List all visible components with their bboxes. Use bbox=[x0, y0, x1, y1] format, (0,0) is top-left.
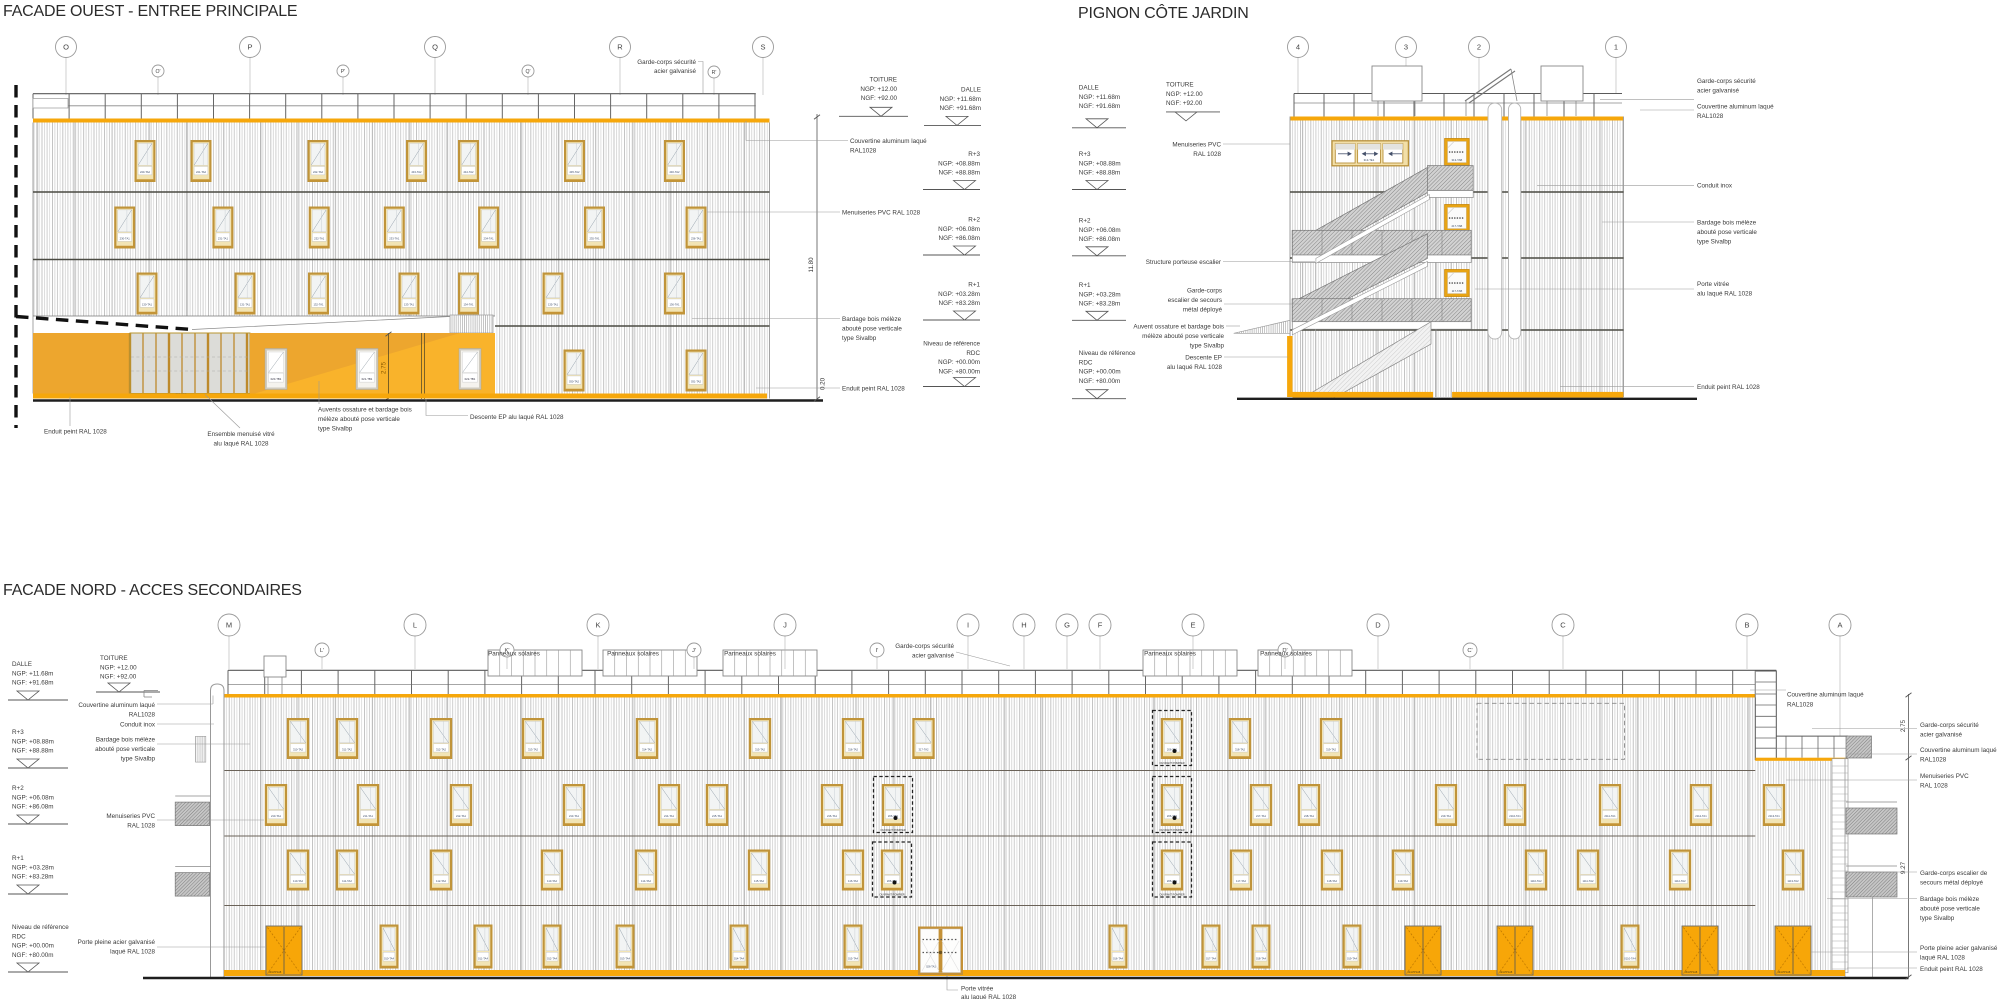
svg-text:FACADE OUEST - ENTREE PRINCIPA: FACADE OUEST - ENTREE PRINCIPALE bbox=[3, 3, 297, 20]
svg-text:Garde-corps: Garde-corps bbox=[1187, 288, 1222, 295]
svg-text:NGP: +03.28m: NGP: +03.28m bbox=[1079, 291, 1121, 298]
svg-text:111-TA2: 111-TA2 bbox=[342, 879, 352, 883]
svg-text:NGP: +00.00m: NGP: +00.00m bbox=[12, 943, 54, 950]
svg-text:NGF: +91.68m: NGF: +91.68m bbox=[940, 105, 981, 112]
svg-text:Ensemble menuisé vitré: Ensemble menuisé vitré bbox=[207, 431, 275, 438]
svg-text:218-TA1: 218-TA1 bbox=[1304, 814, 1315, 818]
svg-text:Couvertine aluminum laqué: Couvertine aluminum laqué bbox=[78, 702, 155, 709]
svg-text:115-TA2: 115-TA2 bbox=[754, 879, 764, 883]
svg-text:DALLE: DALLE bbox=[961, 87, 981, 94]
svg-text:230-TA1: 230-TA1 bbox=[120, 237, 131, 241]
svg-text:abouté pose verticale: abouté pose verticale bbox=[1920, 906, 1980, 913]
svg-text:231-TA1: 231-TA1 bbox=[218, 237, 229, 241]
svg-text:212-TA1: 212-TA1 bbox=[456, 814, 467, 818]
svg-text:313-TAB: 313-TAB bbox=[1451, 158, 1462, 162]
svg-text:2112-TA1: 2112-TA1 bbox=[1695, 814, 1707, 818]
svg-text:mélèze abouté pose verticale: mélèze abouté pose verticale bbox=[318, 416, 400, 423]
svg-text:mélèze abouté pose verticale: mélèze abouté pose verticale bbox=[1142, 333, 1224, 340]
svg-text:1111-TA2: 1111-TA2 bbox=[1582, 879, 1594, 883]
svg-text:133-TA1: 133-TA1 bbox=[404, 303, 415, 307]
svg-text:313-TE1: 313-TE1 bbox=[1364, 158, 1375, 162]
svg-text:abouté pose verticale: abouté pose verticale bbox=[842, 326, 902, 333]
svg-text:Porte vitrée: Porte vitrée bbox=[961, 986, 994, 993]
svg-text:abouté pose verticale: abouté pose verticale bbox=[1697, 229, 1757, 236]
svg-text:NGF: +86.08m: NGF: +86.08m bbox=[12, 804, 53, 811]
svg-text:215-TA1: 215-TA1 bbox=[712, 814, 723, 818]
svg-text:laqué RAL 1028: laqué RAL 1028 bbox=[1920, 955, 1965, 962]
svg-text:315-TA2: 315-TA2 bbox=[755, 747, 766, 751]
svg-text:044-PP1A8: 044-PP1A8 bbox=[1778, 971, 1791, 974]
svg-text:217-TA1: 217-TA1 bbox=[1256, 814, 1267, 818]
svg-text:alu laqué RAL 1028: alu laqué RAL 1028 bbox=[213, 441, 269, 448]
svg-text:type Sivalbp: type Sivalbp bbox=[121, 756, 156, 763]
svg-text:1113-TA2: 1113-TA2 bbox=[1787, 879, 1799, 883]
svg-text:Porte pleine acier galvanisé: Porte pleine acier galvanisé bbox=[78, 939, 156, 946]
svg-text:Couvertine aluminum laqué: Couvertine aluminum laqué bbox=[1697, 104, 1774, 111]
svg-text:R+1: R+1 bbox=[968, 282, 980, 289]
svg-text:113-TA2: 113-TA2 bbox=[547, 879, 557, 883]
svg-text:110-TA2: 110-TA2 bbox=[293, 879, 303, 883]
svg-text:015-TA4: 015-TA4 bbox=[848, 956, 859, 960]
svg-text:Garde-corps sécurité: Garde-corps sécurité bbox=[895, 643, 954, 650]
svg-text:NGF: +88.88m: NGF: +88.88m bbox=[939, 170, 980, 177]
svg-text:P': P' bbox=[341, 69, 345, 75]
svg-text:022-TB1: 022-TB1 bbox=[465, 377, 476, 381]
svg-text:Garde-corps sécurité: Garde-corps sécurité bbox=[1920, 722, 1979, 729]
svg-text:I: I bbox=[967, 621, 969, 630]
svg-text:abouté pose verticale: abouté pose verticale bbox=[95, 746, 155, 753]
svg-text:L: L bbox=[413, 621, 417, 630]
svg-text:Menuiseries PVC: Menuiseries PVC bbox=[1172, 142, 1221, 149]
svg-text:RDC: RDC bbox=[12, 933, 26, 940]
svg-text:acier galvanisé: acier galvanisé bbox=[1697, 88, 1740, 95]
svg-text:R: R bbox=[617, 43, 623, 52]
svg-text:242-TA2: 242-TA2 bbox=[313, 170, 324, 174]
svg-text:Panneaux solaires: Panneaux solaires bbox=[488, 651, 540, 658]
svg-text:011-TA4: 011-TA4 bbox=[478, 956, 488, 960]
svg-text:R+2: R+2 bbox=[968, 217, 980, 224]
svg-text:R+2: R+2 bbox=[12, 785, 24, 792]
svg-text:Couvertine aluminum laqué: Couvertine aluminum laqué bbox=[1920, 747, 1997, 754]
svg-text:R+3: R+3 bbox=[1079, 151, 1091, 158]
svg-text:NGF: +83.28m: NGF: +83.28m bbox=[939, 300, 980, 307]
svg-text:Enduit peint RAL 1028: Enduit peint RAL 1028 bbox=[1920, 966, 1983, 973]
svg-text:Bardage bois mélèze: Bardage bois mélèze bbox=[1697, 220, 1757, 227]
svg-text:NGF: +92.00: NGF: +92.00 bbox=[100, 674, 137, 681]
svg-text:acier galvanisé: acier galvanisé bbox=[1920, 732, 1963, 739]
svg-text:246-TA2: 246-TA2 bbox=[669, 170, 680, 174]
svg-text:NGF: +80.00m: NGF: +80.00m bbox=[1079, 378, 1120, 385]
svg-text:OUVRANT POMPIER: OUVRANT POMPIER bbox=[1159, 828, 1184, 832]
svg-text:Bardage bois mélèze: Bardage bois mélèze bbox=[1920, 896, 1980, 903]
svg-text:118-TA2: 118-TA2 bbox=[1327, 879, 1337, 883]
svg-text:2.75: 2.75 bbox=[381, 361, 388, 374]
svg-text:NGF: +80.00m: NGF: +80.00m bbox=[12, 952, 53, 959]
svg-text:J': J' bbox=[692, 648, 696, 654]
svg-text:K: K bbox=[595, 621, 600, 630]
svg-text:type Sivalbp: type Sivalbp bbox=[1697, 239, 1732, 246]
svg-text:Garde-corps escalier de: Garde-corps escalier de bbox=[1920, 870, 1988, 877]
svg-text:2111-TA1: 2111-TA1 bbox=[1604, 814, 1616, 818]
svg-text:NGP: +11.68m: NGP: +11.68m bbox=[12, 670, 53, 677]
svg-text:2: 2 bbox=[1477, 43, 1481, 52]
svg-text:Garde-corps sécurité: Garde-corps sécurité bbox=[1697, 78, 1756, 85]
svg-text:F: F bbox=[1098, 621, 1103, 630]
svg-text:211-TA1: 211-TA1 bbox=[363, 814, 373, 818]
svg-text:021-TB1: 021-TB1 bbox=[362, 377, 373, 381]
svg-text:Niveau de référence: Niveau de référence bbox=[12, 924, 69, 931]
svg-text:1112-TA2: 1112-TA2 bbox=[1674, 879, 1686, 883]
svg-text:acier galvanisé: acier galvanisé bbox=[654, 68, 697, 75]
svg-text:type Sivalbp: type Sivalbp bbox=[318, 426, 353, 433]
svg-text:Menuiseries PVC: Menuiseries PVC bbox=[1920, 773, 1969, 780]
svg-text:013-TA4: 013-TA4 bbox=[620, 956, 631, 960]
svg-text:026-TA1: 026-TA1 bbox=[926, 965, 936, 969]
svg-text:314-TA2: 314-TA2 bbox=[642, 747, 653, 751]
svg-text:S: S bbox=[760, 43, 765, 52]
svg-text:NGP: +06.08m: NGP: +06.08m bbox=[938, 226, 980, 233]
svg-text:Panneaux solaires: Panneaux solaires bbox=[724, 651, 776, 658]
svg-text:Enduit peint RAL 1028: Enduit peint RAL 1028 bbox=[1697, 384, 1760, 391]
svg-text:M: M bbox=[226, 621, 232, 630]
svg-text:NGP: +03.28m: NGP: +03.28m bbox=[12, 864, 54, 871]
svg-text:O: O bbox=[63, 43, 69, 52]
svg-text:Auvents ossature et bardage bo: Auvents ossature et bardage bois bbox=[318, 407, 412, 414]
svg-text:134-TA1: 134-TA1 bbox=[463, 303, 474, 307]
svg-text:NGF: +92.00: NGF: +92.00 bbox=[861, 95, 898, 102]
svg-text:216-TA1: 216-TA1 bbox=[827, 814, 838, 818]
svg-text:119-TA2: 119-TA2 bbox=[1398, 879, 1408, 883]
svg-text:RAL 1028: RAL 1028 bbox=[1920, 783, 1948, 790]
svg-text:B: B bbox=[1744, 621, 1749, 630]
svg-text:030-TA2: 030-TA2 bbox=[569, 380, 580, 384]
svg-text:NGF: +91.68m: NGF: +91.68m bbox=[12, 680, 53, 687]
svg-text:Garde-corps sécurité: Garde-corps sécurité bbox=[637, 59, 696, 66]
svg-text:NGF: +92.00: NGF: +92.00 bbox=[1166, 100, 1203, 107]
svg-text:319-TA2: 319-TA2 bbox=[1326, 747, 1337, 751]
svg-text:TOITURE: TOITURE bbox=[100, 655, 128, 662]
svg-text:116-TA2: 116-TA2 bbox=[848, 879, 858, 883]
svg-text:NGP: +08.88m: NGP: +08.88m bbox=[938, 160, 980, 167]
svg-text:H: H bbox=[1021, 621, 1026, 630]
svg-text:RDC: RDC bbox=[966, 350, 980, 357]
svg-text:4: 4 bbox=[1296, 43, 1300, 52]
svg-text:310-TA2: 310-TA2 bbox=[293, 747, 304, 751]
svg-text:020-TB1: 020-TB1 bbox=[271, 377, 282, 381]
svg-text:112-TA2: 112-TA2 bbox=[436, 879, 446, 883]
svg-text:RAL1028: RAL1028 bbox=[1787, 702, 1814, 709]
svg-text:NGF: +86.08m: NGF: +86.08m bbox=[939, 235, 980, 242]
svg-text:235-TA1: 235-TA1 bbox=[589, 237, 600, 241]
svg-text:236-TA1: 236-TA1 bbox=[691, 237, 702, 241]
svg-text:135-TA1: 135-TA1 bbox=[548, 303, 559, 307]
svg-text:210-TA1: 210-TA1 bbox=[271, 814, 282, 818]
svg-text:O': O' bbox=[155, 69, 160, 75]
svg-text:004-PP1A8: 004-PP1A8 bbox=[269, 971, 282, 974]
svg-text:NGF: +83.28m: NGF: +83.28m bbox=[1079, 301, 1120, 308]
svg-text:P: P bbox=[247, 43, 252, 52]
svg-text:Enduit peint RAL 1028: Enduit peint RAL 1028 bbox=[44, 429, 107, 436]
svg-text:312-TA2: 312-TA2 bbox=[436, 747, 447, 751]
svg-text:C: C bbox=[1560, 621, 1566, 630]
svg-text:034-PP1A8: 034-PP1A8 bbox=[1685, 971, 1698, 974]
svg-text:PIGNON CÔTE JARDIN: PIGNON CÔTE JARDIN bbox=[1078, 3, 1249, 22]
svg-text:017-TA4: 017-TA4 bbox=[1206, 956, 1217, 960]
svg-text:010-TA4: 010-TA4 bbox=[384, 956, 395, 960]
svg-text:244-TA2: 244-TA2 bbox=[463, 170, 474, 174]
svg-text:Niveau de référence: Niveau de référence bbox=[1079, 350, 1136, 357]
svg-text:Menuiseries PVC: Menuiseries PVC bbox=[106, 813, 155, 820]
svg-text:Porte vitrée: Porte vitrée bbox=[1697, 281, 1730, 288]
svg-text:J: J bbox=[783, 621, 787, 630]
svg-text:NGP: +08.88m: NGP: +08.88m bbox=[1079, 160, 1121, 167]
svg-text:217-TAB: 217-TAB bbox=[1451, 224, 1462, 228]
svg-text:NGF: +80.00m: NGF: +80.00m bbox=[939, 368, 980, 375]
svg-text:NGP: +06.08m: NGP: +06.08m bbox=[1079, 227, 1121, 234]
svg-text:214-TA1: 214-TA1 bbox=[664, 814, 675, 818]
svg-text:NGP: +00.00m: NGP: +00.00m bbox=[1079, 369, 1121, 376]
svg-text:Enduit peint RAL 1028: Enduit peint RAL 1028 bbox=[842, 386, 905, 393]
svg-text:TOITURE: TOITURE bbox=[1166, 82, 1194, 89]
svg-text:313-TA2: 313-TA2 bbox=[528, 747, 539, 751]
svg-text:NGP: +11.68m: NGP: +11.68m bbox=[940, 96, 981, 103]
svg-text:Descente EP alu laqué RAL 1028: Descente EP alu laqué RAL 1028 bbox=[470, 414, 564, 421]
svg-text:114-TA2: 114-TA2 bbox=[641, 879, 651, 883]
svg-text:FACADE NORD - ACCES SECONDAIRE: FACADE NORD - ACCES SECONDAIRES bbox=[3, 582, 302, 599]
svg-text:NGF: +83.28m: NGF: +83.28m bbox=[12, 874, 53, 881]
svg-text:NGP: +03.28m: NGP: +03.28m bbox=[938, 291, 980, 298]
svg-text:243-TA2: 243-TA2 bbox=[411, 170, 422, 174]
svg-text:233-TA1: 233-TA1 bbox=[389, 237, 400, 241]
svg-text:Q': Q' bbox=[525, 69, 530, 75]
svg-text:R+3: R+3 bbox=[968, 151, 980, 158]
svg-text:Q: Q bbox=[432, 43, 438, 52]
svg-text:RAL1028: RAL1028 bbox=[850, 148, 877, 155]
svg-text:DALLE: DALLE bbox=[1079, 85, 1099, 92]
svg-text:NGP: +11.68m: NGP: +11.68m bbox=[1079, 94, 1120, 101]
svg-text:R+3: R+3 bbox=[12, 729, 24, 736]
svg-text:RAL1028: RAL1028 bbox=[1697, 113, 1724, 120]
svg-text:R': R' bbox=[712, 70, 717, 76]
svg-text:A: A bbox=[1837, 621, 1842, 630]
svg-text:NGP: +00.00m: NGP: +00.00m bbox=[938, 359, 980, 366]
svg-text:Structure porteuse escalier: Structure porteuse escalier bbox=[1146, 259, 1221, 266]
svg-text:3: 3 bbox=[1404, 43, 1408, 52]
svg-text:Panneaux solaires: Panneaux solaires bbox=[1260, 651, 1312, 658]
svg-text:L': L' bbox=[320, 648, 324, 654]
svg-text:Bardage bois mélèze: Bardage bois mélèze bbox=[96, 737, 156, 744]
svg-text:OUVRANT POMPIER: OUVRANT POMPIER bbox=[1159, 893, 1184, 897]
svg-text:Panneaux solaires: Panneaux solaires bbox=[1144, 651, 1196, 658]
svg-text:alu laqué RAL 1028: alu laqué RAL 1028 bbox=[1697, 291, 1753, 298]
svg-text:016-TA4: 016-TA4 bbox=[1113, 956, 1124, 960]
svg-text:NGP: +12.00: NGP: +12.00 bbox=[100, 664, 137, 671]
svg-text:NGF: +88.88m: NGF: +88.88m bbox=[12, 748, 53, 755]
svg-text:318-TA2: 318-TA2 bbox=[1235, 747, 1246, 751]
svg-text:DALLE: DALLE bbox=[12, 661, 32, 668]
svg-text:012-TA4: 012-TA4 bbox=[547, 956, 558, 960]
svg-text:escalier de secours: escalier de secours bbox=[1168, 297, 1222, 304]
svg-text:014-TA4: 014-TA4 bbox=[734, 956, 745, 960]
svg-text:NGP: +06.08m: NGP: +06.08m bbox=[12, 794, 54, 801]
svg-text:E: E bbox=[1190, 621, 1195, 630]
svg-text:2113-TA1: 2113-TA1 bbox=[1768, 814, 1780, 818]
svg-text:acier galvanisé: acier galvanisé bbox=[912, 653, 955, 660]
svg-text:117-TAB: 117-TAB bbox=[1452, 289, 1463, 293]
svg-text:219-TA1: 219-TA1 bbox=[1441, 814, 1452, 818]
svg-text:alu laqué RAL 1028: alu laqué RAL 1028 bbox=[1167, 364, 1223, 371]
svg-text:D: D bbox=[1375, 621, 1381, 630]
svg-text:2110-TA1: 2110-TA1 bbox=[1509, 814, 1521, 818]
svg-text:R+1: R+1 bbox=[1079, 282, 1091, 289]
svg-text:316-TA2: 316-TA2 bbox=[848, 747, 859, 751]
svg-text:018-TA4: 018-TA4 bbox=[1256, 956, 1267, 960]
svg-text:1110-TA2: 1110-TA2 bbox=[1530, 879, 1542, 883]
svg-text:Auvent ossature et bardage boi: Auvent ossature et bardage bois bbox=[1133, 324, 1224, 331]
svg-text:014-PP1A8: 014-PP1A8 bbox=[1408, 971, 1421, 974]
svg-text:NGP: +12.00: NGP: +12.00 bbox=[1166, 91, 1203, 98]
svg-text:0110-TA4: 0110-TA4 bbox=[1624, 956, 1636, 960]
svg-text:RDC: RDC bbox=[1079, 359, 1093, 366]
svg-text:136-TA1: 136-TA1 bbox=[669, 303, 680, 307]
svg-text:311-TA2: 311-TA2 bbox=[342, 747, 352, 751]
svg-text:Couvertine aluminum laqué: Couvertine aluminum laqué bbox=[850, 138, 927, 145]
svg-text:Panneaux solaires: Panneaux solaires bbox=[607, 651, 659, 658]
svg-text:type Sivalbp: type Sivalbp bbox=[1920, 915, 1955, 922]
svg-text:317-TA2: 317-TA2 bbox=[918, 747, 929, 751]
svg-text:2.75: 2.75 bbox=[1900, 719, 1907, 732]
svg-text:Porte pleine acier galvanisé: Porte pleine acier galvanisé bbox=[1920, 945, 1998, 952]
svg-text:OUVRANT POMPIER: OUVRANT POMPIER bbox=[879, 893, 904, 897]
svg-text:NGP: +12.00: NGP: +12.00 bbox=[860, 86, 897, 93]
svg-text:234-TA1: 234-TA1 bbox=[484, 237, 495, 241]
svg-text:C': C' bbox=[1467, 648, 1472, 654]
svg-text:130-TA1: 130-TA1 bbox=[142, 303, 153, 307]
svg-text:11.80: 11.80 bbox=[808, 257, 815, 273]
svg-text:alu laqué RAL 1028: alu laqué RAL 1028 bbox=[961, 994, 1017, 999]
svg-text:Niveau de référence: Niveau de référence bbox=[923, 341, 980, 348]
svg-text:type Sivalbp: type Sivalbp bbox=[842, 335, 877, 342]
svg-text:Conduit inox: Conduit inox bbox=[120, 722, 156, 729]
svg-text:TOITURE: TOITURE bbox=[869, 77, 897, 84]
svg-text:245-TA2: 245-TA2 bbox=[569, 170, 580, 174]
svg-text:RAL1028: RAL1028 bbox=[129, 712, 156, 719]
svg-text:métal déployé: métal déployé bbox=[1183, 307, 1223, 314]
svg-text:132-TA1: 132-TA1 bbox=[313, 303, 324, 307]
svg-text:Descente EP: Descente EP bbox=[1185, 355, 1222, 362]
svg-text:Couvertine aluminum laqué: Couvertine aluminum laqué bbox=[1787, 692, 1864, 699]
svg-text:RAL 1028: RAL 1028 bbox=[127, 823, 155, 830]
svg-text:R+2: R+2 bbox=[1079, 218, 1091, 225]
svg-text:241-TA2: 241-TA2 bbox=[196, 170, 207, 174]
svg-text:G: G bbox=[1064, 621, 1070, 630]
svg-text:RAL1028: RAL1028 bbox=[1920, 757, 1947, 764]
svg-text:1: 1 bbox=[1614, 43, 1618, 52]
svg-text:NGF: +91.68m: NGF: +91.68m bbox=[1079, 103, 1120, 110]
svg-text:Conduit inox: Conduit inox bbox=[1697, 183, 1733, 190]
svg-text:019-TA4: 019-TA4 bbox=[1347, 956, 1358, 960]
svg-text:NGF: +86.08m: NGF: +86.08m bbox=[1079, 236, 1120, 243]
svg-text:secours métal déployé: secours métal déployé bbox=[1920, 880, 1984, 887]
svg-text:240-TA2: 240-TA2 bbox=[140, 170, 151, 174]
svg-text:117-TA2: 117-TA2 bbox=[1236, 879, 1246, 883]
svg-text:NGF: +88.88m: NGF: +88.88m bbox=[1079, 170, 1120, 177]
svg-text:232-TA1: 232-TA1 bbox=[314, 237, 325, 241]
svg-text:024-PP1A8: 024-PP1A8 bbox=[1500, 971, 1513, 974]
svg-text:Menuiseries PVC RAL 1028: Menuiseries PVC RAL 1028 bbox=[842, 210, 921, 217]
svg-text:213-TA1: 213-TA1 bbox=[569, 814, 580, 818]
svg-text:R+1: R+1 bbox=[12, 855, 24, 862]
svg-text:031-TA2: 031-TA2 bbox=[691, 380, 702, 384]
svg-text:OUVRANT POMPIER: OUVRANT POMPIER bbox=[1159, 761, 1184, 765]
svg-text:type Sivalbp: type Sivalbp bbox=[1190, 343, 1225, 350]
svg-text:NGP: +08.88m: NGP: +08.88m bbox=[12, 738, 54, 745]
svg-text:131-TA1: 131-TA1 bbox=[240, 303, 251, 307]
svg-text:RAL 1028: RAL 1028 bbox=[1193, 151, 1221, 158]
svg-text:OUVRANT POMPIER: OUVRANT POMPIER bbox=[880, 828, 905, 832]
svg-text:Bardage bois mélèze: Bardage bois mélèze bbox=[842, 316, 902, 323]
svg-text:I': I' bbox=[876, 648, 879, 654]
svg-text:laqué RAL 1028: laqué RAL 1028 bbox=[110, 949, 155, 956]
